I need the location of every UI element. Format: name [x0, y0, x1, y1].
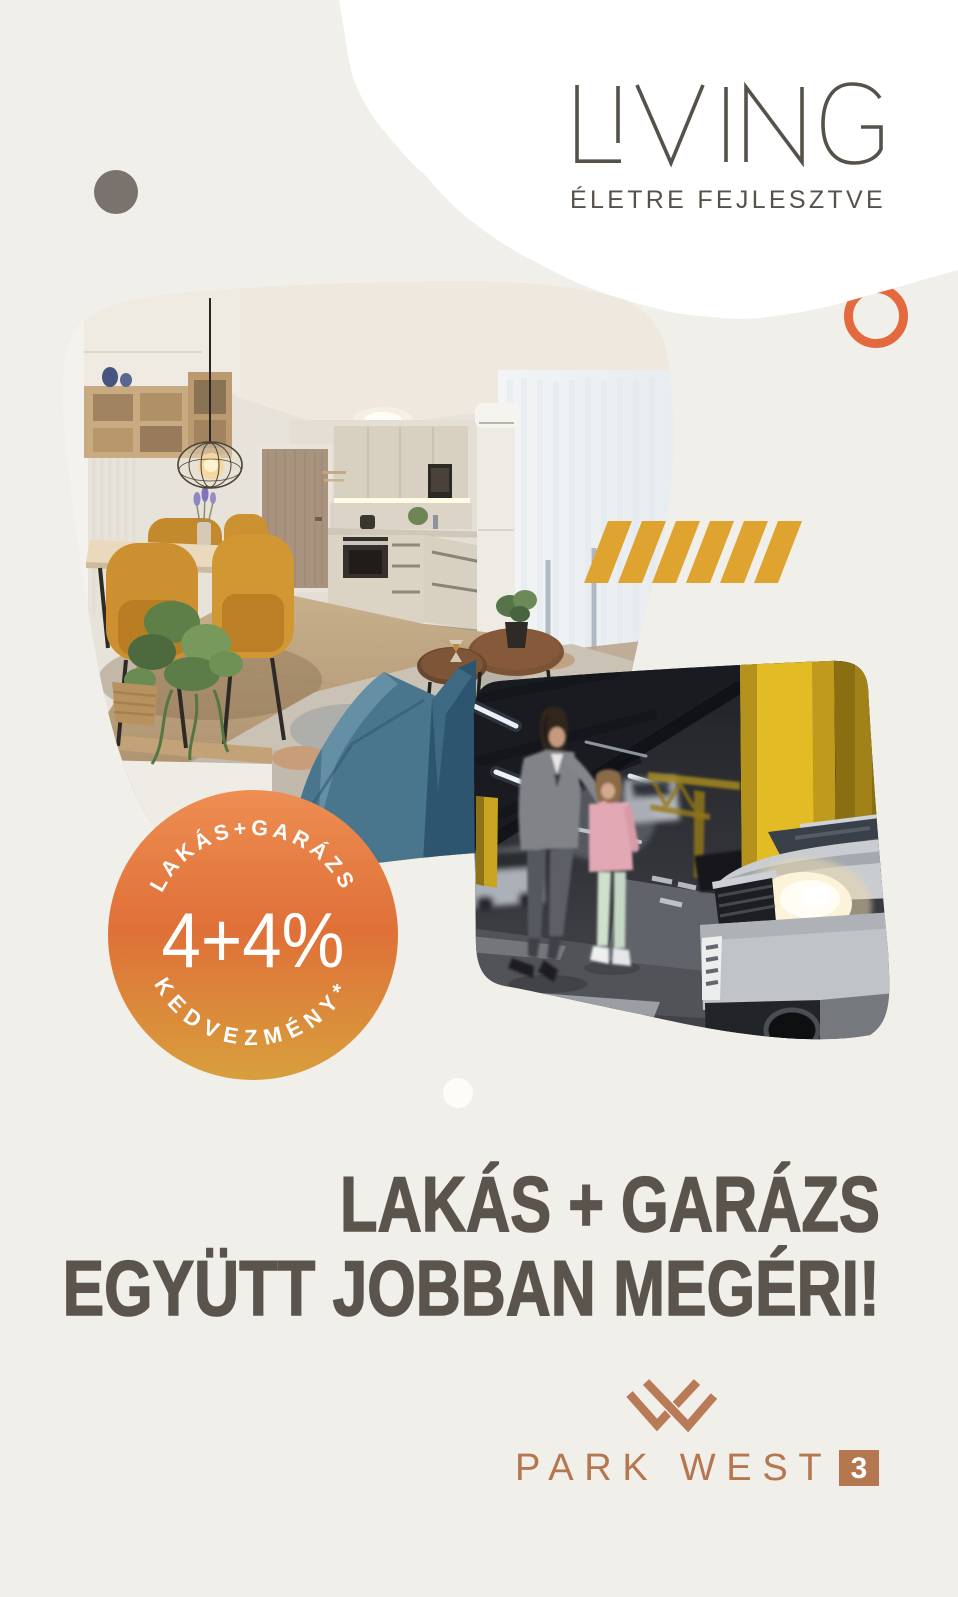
svg-text:ÉLETRE FEJLESZTVE: ÉLETRE FEJLESZTVE: [570, 185, 886, 214]
